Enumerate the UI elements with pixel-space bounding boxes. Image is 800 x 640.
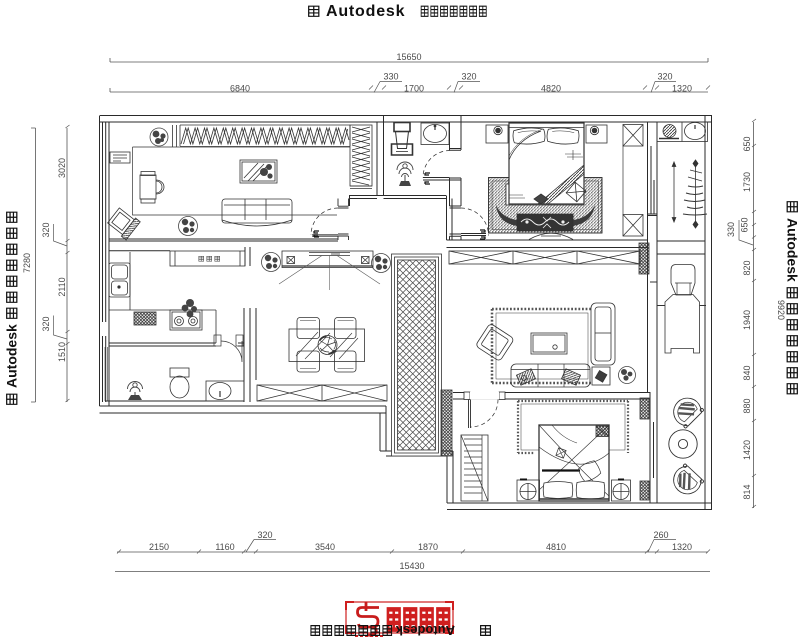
svg-text:Autodesk: Autodesk	[4, 324, 20, 388]
svg-text:330: 330	[726, 222, 736, 237]
svg-text:1700: 1700	[404, 84, 424, 94]
svg-text:260: 260	[653, 530, 668, 540]
svg-text:320: 320	[657, 72, 672, 82]
svg-text:840: 840	[742, 365, 752, 380]
svg-text:330: 330	[383, 72, 398, 82]
svg-text:1730: 1730	[742, 172, 752, 192]
svg-text:1160: 1160	[215, 542, 234, 552]
svg-text:1320: 1320	[672, 542, 692, 552]
svg-text:3540: 3540	[315, 542, 335, 552]
svg-text:2150: 2150	[149, 542, 169, 552]
svg-text:1940: 1940	[742, 310, 752, 330]
svg-text:320: 320	[257, 530, 272, 540]
svg-text:Autodesk: Autodesk	[785, 218, 800, 282]
svg-text:4820: 4820	[541, 84, 561, 94]
svg-text:1320: 1320	[672, 84, 692, 94]
svg-text:320: 320	[461, 72, 476, 82]
svg-text:650: 650	[740, 217, 750, 232]
svg-text:320: 320	[41, 316, 51, 331]
svg-text:880: 880	[742, 398, 752, 413]
svg-text:2110: 2110	[57, 277, 67, 296]
svg-text:4810: 4810	[546, 542, 566, 552]
svg-text:9920: 9920	[776, 300, 786, 320]
svg-text:6840: 6840	[230, 84, 250, 94]
svg-text:320: 320	[41, 222, 51, 237]
svg-text:650: 650	[742, 136, 752, 151]
svg-text:7280: 7280	[22, 253, 32, 273]
svg-text:814: 814	[742, 484, 752, 499]
svg-text:Autodesk: Autodesk	[395, 623, 455, 638]
svg-text:820: 820	[742, 260, 752, 275]
svg-text:1510: 1510	[57, 342, 67, 362]
svg-text:1420: 1420	[742, 440, 752, 460]
svg-text:3020: 3020	[57, 158, 67, 178]
svg-text:Autodesk: Autodesk	[326, 3, 405, 20]
svg-text:1870: 1870	[418, 542, 438, 552]
svg-text:15430: 15430	[399, 561, 424, 571]
svg-text:15650: 15650	[396, 52, 421, 62]
